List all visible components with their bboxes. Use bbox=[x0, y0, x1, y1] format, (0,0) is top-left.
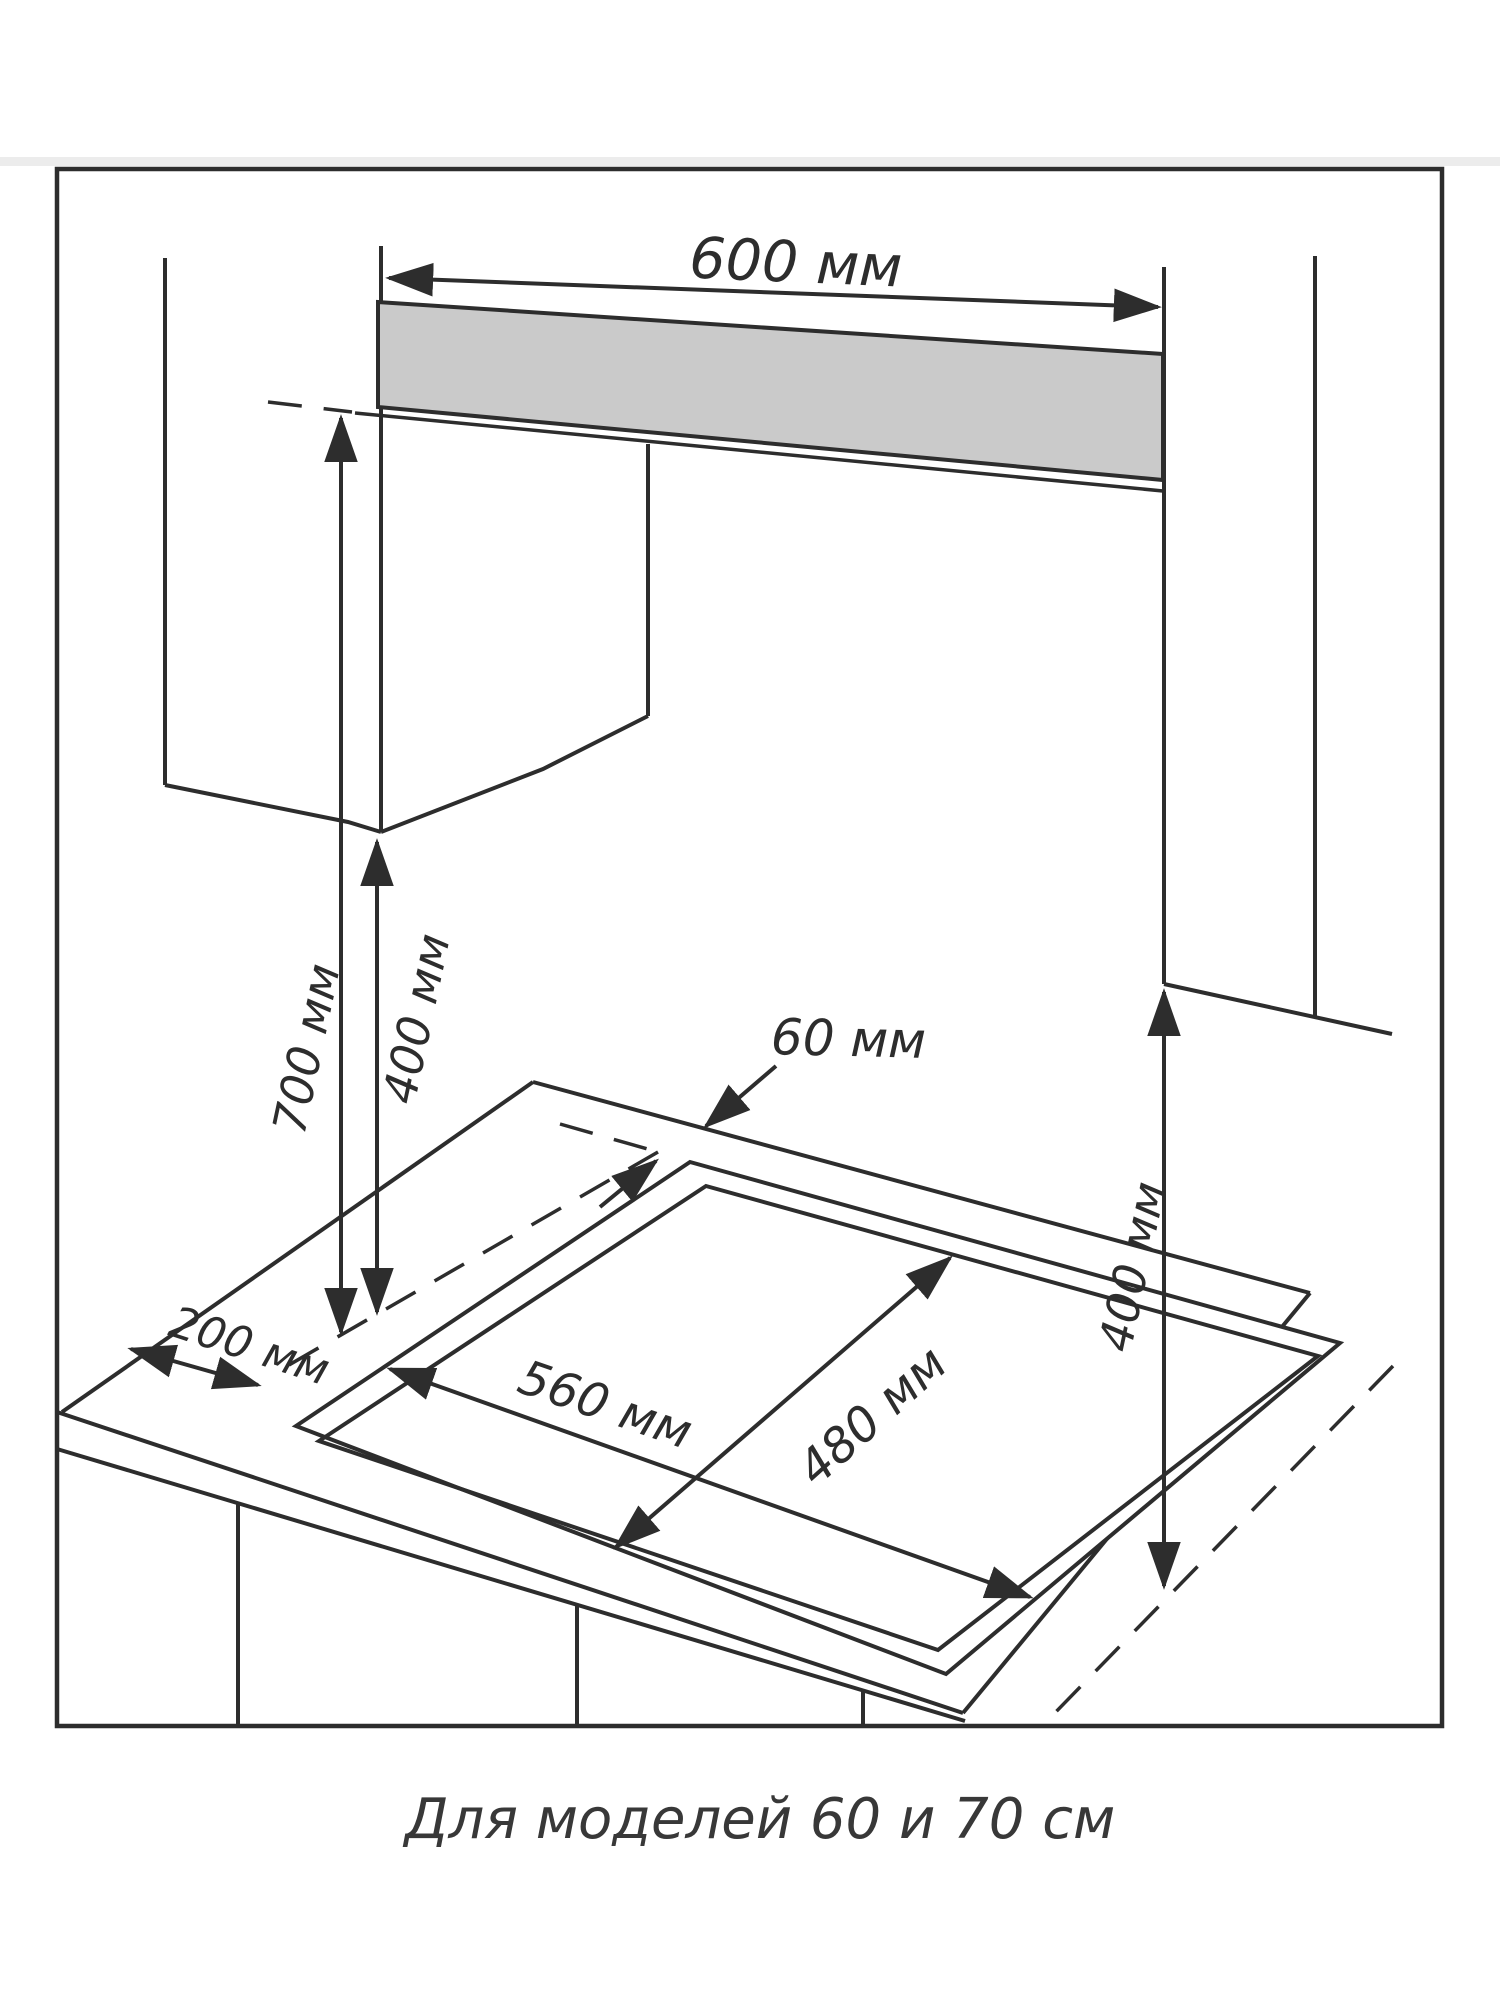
cutout-outer-rect bbox=[296, 1162, 1340, 1674]
backsplash-strip bbox=[355, 302, 1163, 491]
dim-arrow-rear-gap-leader bbox=[706, 1066, 776, 1126]
right-cabinet-bottom bbox=[1164, 984, 1392, 1034]
left-cabinet-bottom bbox=[165, 785, 381, 832]
hood-cabinet-bottom bbox=[381, 716, 648, 832]
dashed-hob-back-edge bbox=[560, 1124, 658, 1152]
dashed-batten-level bbox=[268, 402, 352, 412]
label-rear-wall-gap: 60 мм bbox=[770, 1008, 926, 1070]
diagram-caption: Для моделей 60 и 70 см bbox=[402, 1787, 1116, 1852]
label-left-cabinet-clearance: 400 мм bbox=[372, 929, 461, 1108]
page-rule bbox=[0, 157, 1500, 166]
installation-diagram-page: 600 мм 700 мм 400 мм 60 мм 200 мм 560 мм… bbox=[0, 0, 1500, 2000]
hob-cutout bbox=[296, 1162, 1340, 1674]
diagram-canvas: 600 мм 700 мм 400 мм 60 мм 200 мм 560 мм… bbox=[0, 0, 1500, 2000]
label-hood-clearance: 700 мм bbox=[262, 959, 351, 1138]
label-top-width: 600 мм bbox=[688, 225, 904, 300]
